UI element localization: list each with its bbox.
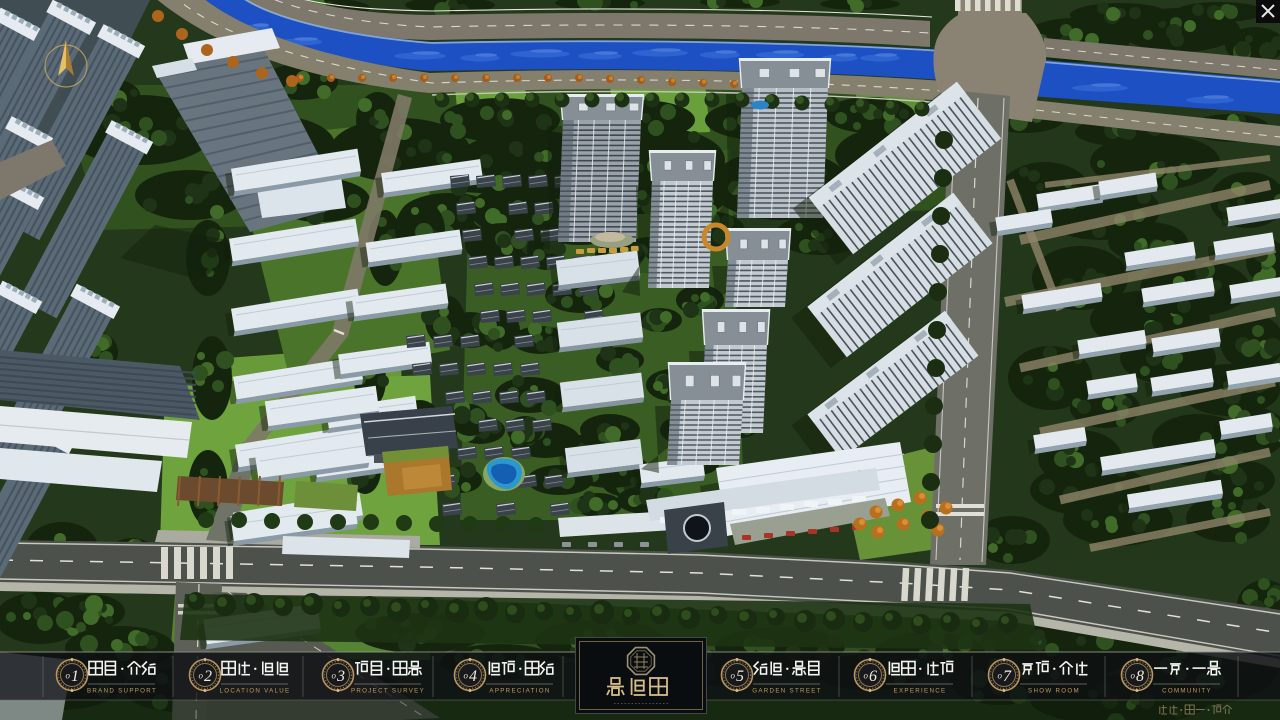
svg-text:o: o — [464, 671, 469, 681]
svg-text:o: o — [731, 671, 736, 681]
svg-text:EXPERIENCE: EXPERIENCE — [894, 688, 947, 695]
svg-text:APPRECIATION: APPRECIATION — [489, 688, 550, 695]
svg-text:SHOW ROOM: SHOW ROOM — [1028, 688, 1080, 695]
svg-text:o: o — [998, 671, 1003, 681]
svg-text:6: 6 — [869, 668, 877, 685]
svg-text:o: o — [66, 671, 71, 681]
svg-text:o: o — [1131, 671, 1136, 681]
svg-text:o: o — [332, 671, 337, 681]
svg-text:8: 8 — [1136, 668, 1144, 685]
svg-text:PROJECT SURVEY: PROJECT SURVEY — [351, 688, 425, 695]
svg-text:LOCATION VALUE: LOCATION VALUE — [220, 688, 291, 695]
svg-text:o: o — [864, 671, 869, 681]
svg-text:7: 7 — [1003, 668, 1012, 685]
svg-text:GARDEN STREET: GARDEN STREET — [752, 688, 822, 695]
svg-text:4: 4 — [469, 668, 477, 685]
svg-text:1: 1 — [71, 668, 79, 685]
svg-text:BRAND SUPPORT: BRAND SUPPORT — [87, 688, 157, 695]
svg-text:o: o — [199, 671, 204, 681]
svg-text:2: 2 — [204, 668, 212, 685]
svg-text:3: 3 — [336, 668, 345, 685]
svg-text:COMMUNITY: COMMUNITY — [1162, 688, 1212, 695]
svg-text:5: 5 — [736, 668, 744, 685]
